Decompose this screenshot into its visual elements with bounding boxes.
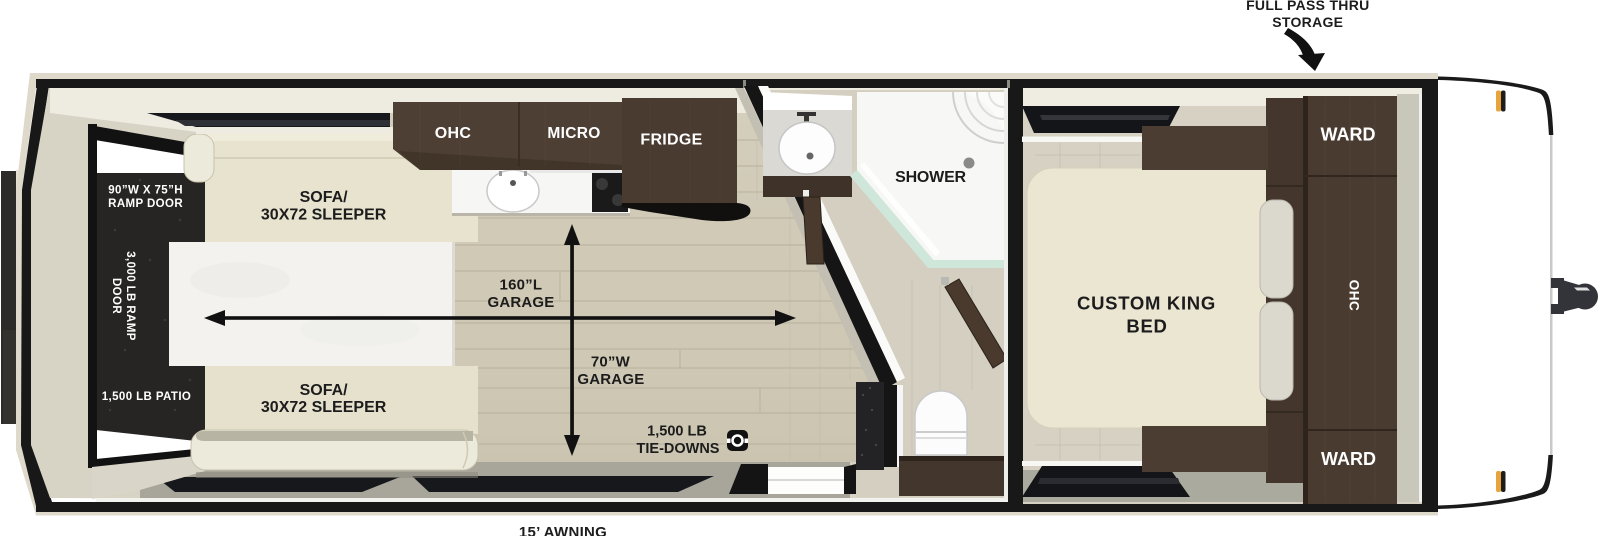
svg-text:90”W X 75”H: 90”W X 75”H [108, 185, 183, 197]
svg-text:3,000 LB RAMP: 3,000 LB RAMP [124, 251, 136, 341]
svg-text:1,500 LB: 1,500 LB [647, 424, 707, 440]
svg-text:SOFA/: SOFA/ [300, 382, 349, 399]
svg-text:160”L: 160”L [500, 277, 543, 294]
svg-text:FULL PASS THRU: FULL PASS THRU [1246, 0, 1369, 13]
svg-text:GARAGE: GARAGE [577, 371, 644, 388]
svg-text:BED: BED [1126, 316, 1167, 337]
svg-text:WARD: WARD [1321, 449, 1376, 469]
svg-text:1,500 LB PATIO: 1,500 LB PATIO [102, 391, 192, 403]
svg-text:WARD: WARD [1321, 125, 1376, 145]
svg-text:TIE-DOWNS: TIE-DOWNS [637, 441, 720, 457]
svg-text:SHOWER: SHOWER [895, 169, 966, 186]
svg-text:FRIDGE: FRIDGE [640, 132, 702, 149]
svg-text:RAMP DOOR: RAMP DOOR [108, 198, 183, 210]
svg-text:30X72 SLEEPER: 30X72 SLEEPER [261, 399, 387, 416]
svg-text:OHC: OHC [435, 125, 472, 142]
svg-text:GARAGE: GARAGE [487, 294, 554, 311]
svg-text:30X72 SLEEPER: 30X72 SLEEPER [261, 207, 387, 224]
svg-text:STORAGE: STORAGE [1272, 14, 1343, 30]
svg-text:CUSTOM KING: CUSTOM KING [1077, 293, 1216, 314]
svg-text:15’ AWNING: 15’ AWNING [519, 524, 607, 536]
svg-text:SOFA/: SOFA/ [300, 189, 349, 206]
svg-text:OHC: OHC [1347, 280, 1362, 312]
svg-text:MICRO: MICRO [547, 125, 600, 142]
svg-text:DOOR: DOOR [110, 278, 122, 314]
svg-text:70”W: 70”W [591, 354, 631, 371]
